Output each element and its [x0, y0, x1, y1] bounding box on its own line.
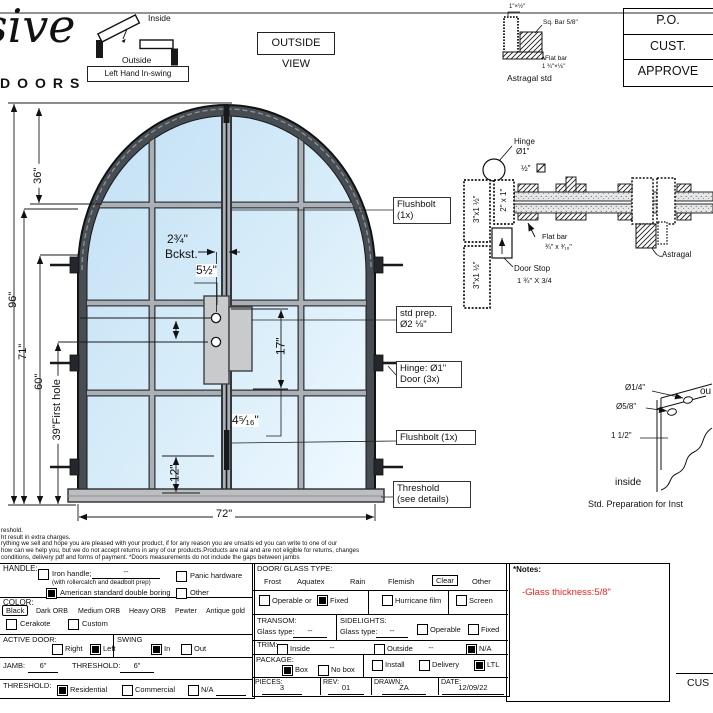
astragal-flatbar-dim: 1 ¾"×⅛"	[542, 64, 565, 70]
view-label: OUTSIDE VIEW	[257, 32, 335, 55]
callout-flushbolt-top-line1: Flushbolt	[397, 199, 447, 210]
callout-threshold-line1: Threshold	[397, 483, 467, 494]
callout-flushbolt-top: Flushbolt (1x)	[393, 197, 451, 224]
color-option-pewter[interactable]: Pewter	[175, 608, 197, 615]
trim-outside-value[interactable]: --	[415, 643, 447, 655]
threshold-commercial-option[interactable]: Commercial	[135, 686, 175, 694]
panic-hardware-checkbox[interactable]	[176, 571, 187, 582]
operable-option[interactable]: Operable or	[272, 597, 312, 605]
glass-option-flemish[interactable]: Flemish	[388, 578, 414, 586]
callout-std-prep-line1: std prep.	[400, 308, 448, 319]
sidelights-fixed-option[interactable]: Fixed	[481, 626, 499, 634]
dim-71: 71"	[18, 340, 30, 364]
handle-other-checkbox[interactable]	[176, 588, 187, 599]
hurricane-option[interactable]: Hurricane film	[395, 597, 441, 605]
handing-label: Left Hand In-swing	[87, 66, 189, 82]
prep-detail-drawing	[640, 384, 712, 492]
threshold-na-option[interactable]: N/A	[201, 686, 214, 694]
swing-out-checkbox[interactable]	[181, 644, 192, 655]
callout-std-prep: std prep. Ø2 ⅛"	[396, 306, 452, 333]
glass-option-aquatex[interactable]: Aquatex	[297, 578, 325, 586]
handle-other-option[interactable]: Other	[190, 589, 209, 597]
date-value[interactable]: 12/09/22	[442, 683, 504, 695]
screen-option[interactable]: Screen	[469, 597, 493, 605]
signature-line	[676, 673, 713, 674]
jamb-threshold-label: THRESHOLD:	[72, 662, 120, 670]
sidelights-glass-value[interactable]: --	[376, 626, 408, 638]
install-checkbox[interactable]	[372, 660, 383, 671]
astragal-top-dim: 1"×½"	[509, 4, 525, 10]
trim-outside-option[interactable]: Outside	[387, 645, 413, 653]
threshold-residential-option[interactable]: Residential	[70, 686, 107, 694]
sidelights-glass-type-label: Glass type:	[340, 628, 378, 636]
section-flatbar-label: Flat bar	[542, 233, 567, 241]
dim-39-first-hole: 39"First hole	[52, 376, 64, 444]
trim-outside-checkbox[interactable]	[374, 644, 385, 655]
package-label: PACKAGE:	[256, 656, 294, 664]
glass-option-other[interactable]: Other	[472, 578, 491, 586]
section-profile-a: 3"x1 ½"	[473, 187, 481, 231]
custom-color-checkbox[interactable]	[68, 619, 79, 630]
notes-label: *Notes:	[513, 566, 541, 574]
callout-threshold-line2: (see details)	[397, 494, 467, 505]
american-boring-checkbox[interactable]	[46, 588, 57, 599]
iron-handle-note: (with rollercatch and deadbolt prep)	[52, 580, 151, 587]
callout-hinge-line1: Hinge: Ø1"	[400, 363, 458, 374]
drawn-value[interactable]: ZA	[382, 683, 426, 695]
swing-inside-label: Inside	[148, 14, 171, 23]
astragal-sqbar-label: Sq. Bar 5/8"	[543, 20, 578, 27]
callout-hinge: Hinge: Ø1" Door (3x)	[396, 361, 462, 388]
section-hinge-label: Hinge	[514, 138, 535, 146]
pieces-value[interactable]: 3	[262, 683, 302, 695]
threshold-residential-checkbox[interactable]	[57, 685, 68, 696]
section-profile-c: 2" x 1"	[500, 178, 508, 222]
sidelights-fixed-checkbox[interactable]	[468, 624, 479, 635]
notes-glass-thickness: -Glass thickness:5/8"	[522, 588, 611, 598]
dim-60: 60"	[34, 370, 46, 394]
callout-hinge-line2: Door (3x)	[400, 374, 458, 385]
prep-caption: Std. Preparation for Inst	[588, 500, 683, 509]
glass-option-frost[interactable]: Frost	[264, 578, 281, 586]
section-astragal-label: Astragal	[662, 251, 691, 259]
fixed-checkbox[interactable]	[317, 595, 328, 606]
transom-glass-value[interactable]: --	[293, 626, 327, 638]
trim-na-checkbox[interactable]	[466, 644, 477, 655]
ltl-option[interactable]: LTL	[487, 661, 499, 669]
glass-type-label: DOOR/ GLASS TYPE:	[257, 565, 332, 573]
astragal-flatbar-label: Flat bar	[545, 56, 567, 63]
threshold-commercial-checkbox[interactable]	[122, 685, 133, 696]
sidelights-operable-checkbox[interactable]	[417, 624, 428, 635]
trim-inside-checkbox[interactable]	[277, 644, 288, 655]
fixed-option[interactable]: Fixed	[330, 597, 348, 605]
jamb-value[interactable]: 6"	[28, 661, 58, 673]
callout-flushbolt-top-line2: (1x)	[397, 210, 447, 221]
iron-handle-checkbox[interactable]	[38, 569, 49, 580]
threshold-na-checkbox[interactable]	[188, 685, 199, 696]
dim-12: 12"	[169, 461, 182, 485]
jamb-label: JAMB:	[3, 662, 25, 670]
trim-na-option[interactable]: N/A	[479, 645, 492, 653]
section-profile-b: 3"x1 ½"	[473, 253, 481, 297]
cerakote-checkbox[interactable]	[6, 619, 17, 630]
logo-script: sive	[0, 2, 76, 50]
swing-in-option[interactable]: In	[164, 645, 170, 653]
astragal-std-detail	[503, 12, 545, 60]
active-door-label: ACTIVE DOOR:	[3, 636, 57, 644]
shop-drawing-sheet: sive DOORS Inside Outside Left Hand In-s…	[0, 0, 713, 713]
rev-value[interactable]: 01	[328, 683, 364, 695]
package-nobox-option[interactable]: No box	[331, 666, 355, 674]
prep-offset: 1 1/2"	[611, 432, 632, 440]
logo-word: DOORS	[0, 76, 86, 91]
approval-row-po: P.O.	[624, 14, 712, 27]
handle-label: HANDLE:	[3, 565, 38, 573]
delivery-option[interactable]: Delivery	[432, 661, 459, 669]
swing-outside-label: Outside	[122, 56, 151, 65]
threshold-label: THRESHOLD:	[3, 682, 51, 690]
dim-backset-value: 2¾"	[167, 233, 188, 246]
dim-5-half: 5½"	[196, 264, 217, 277]
active-left-option[interactable]: Left	[103, 645, 116, 653]
active-left-checkbox[interactable]	[90, 644, 101, 655]
prep-outside: ou	[700, 387, 711, 398]
notes-box	[506, 563, 670, 702]
install-option[interactable]: Install	[385, 661, 405, 669]
color-option-heavy-orb[interactable]: Heavy ORB	[129, 608, 166, 615]
swing-in-checkbox[interactable]	[151, 644, 162, 655]
swing-label: SWING	[117, 636, 142, 644]
flushbolt-top-mark	[224, 106, 230, 123]
package-box-checkbox[interactable]	[282, 665, 293, 676]
transom-glass-type-label: Glass type:	[257, 628, 295, 636]
american-boring-option[interactable]: American standard double boring	[60, 589, 171, 597]
trim-inside-option[interactable]: Inside	[290, 645, 310, 653]
color-option-medium-orb[interactable]: Medium ORB	[78, 608, 120, 615]
color-option-black[interactable]: Black	[2, 605, 28, 616]
jamb-threshold-value[interactable]: 6"	[120, 661, 154, 673]
sidelights-operable-option[interactable]: Operable	[430, 626, 461, 634]
trim-label: TRIM:	[257, 641, 277, 649]
dim-96: 96"	[8, 288, 20, 312]
cerakote-option[interactable]: Cerakote	[20, 620, 50, 628]
fine-print-line: conditions, delivery pdf and forms of pa…	[1, 555, 359, 562]
signature-label: CUS	[687, 678, 709, 689]
fine-print: reshold. ht result in extra charges. ryt…	[1, 528, 359, 562]
iron-handle-option[interactable]: Iron handle;	[52, 570, 92, 578]
prep-hole-big: Ø5/8"	[616, 403, 636, 411]
glass-option-clear[interactable]: Clear	[432, 575, 458, 586]
glass-option-rain[interactable]: Rain	[350, 578, 365, 586]
delivery-checkbox[interactable]	[419, 660, 430, 671]
operable-checkbox[interactable]	[259, 595, 270, 606]
dim-36: 36"	[33, 164, 45, 188]
ltl-checkbox[interactable]	[474, 660, 485, 671]
jamb-section-drawing	[464, 146, 713, 308]
approval-row-cust: CUST.	[624, 40, 712, 53]
prep-inside: inside	[615, 478, 641, 489]
hurricane-checkbox[interactable]	[382, 595, 393, 606]
prep-hole-small: Ø1/4"	[625, 384, 645, 392]
trim-inside-value[interactable]: --	[314, 643, 350, 655]
iron-handle-value[interactable]: --	[92, 567, 160, 579]
dim-4-5-16: 4⁵⁄₁₆"	[232, 414, 259, 427]
dim-backset-word: Bckst.	[165, 248, 198, 261]
section-flatbar-dim: ¾" x ³⁄₁₆"	[545, 244, 572, 251]
section-half-bar: ½"	[521, 165, 531, 173]
section-hinge-dia: Ø1"	[516, 148, 530, 156]
callout-std-prep-line2: Ø2 ⅛"	[400, 319, 448, 330]
dim-17: 17"	[275, 334, 288, 358]
astragal-caption: Astragal std	[507, 74, 552, 83]
package-box-option[interactable]: Box	[295, 666, 308, 674]
section-doorstop-dim: 1 ¾" X 3/4	[517, 277, 552, 285]
color-option-antique-gold[interactable]: Antique gold	[206, 608, 245, 615]
callout-flushbolt-bottom: Flushbolt (1x)	[396, 430, 476, 445]
callout-threshold: Threshold (see details)	[393, 481, 471, 508]
custom-color-option[interactable]: Custom	[82, 620, 108, 628]
active-right-option[interactable]: Right	[65, 645, 83, 653]
flushbolt-bottom-mark	[224, 430, 230, 470]
sidelights-label: SIDELIGHTS:	[340, 617, 387, 625]
dim-72: 72"	[213, 509, 235, 521]
panic-hardware-option[interactable]: Panic hardware	[190, 572, 242, 580]
active-right-checkbox[interactable]	[52, 644, 63, 655]
section-doorstop-label: Door Stop	[514, 265, 550, 273]
threshold-na-value[interactable]	[216, 684, 246, 696]
swing-out-option[interactable]: Out	[194, 645, 206, 653]
package-nobox-checkbox[interactable]	[318, 665, 329, 676]
screen-checkbox[interactable]	[456, 595, 467, 606]
transom-label: TRANSOM:	[257, 617, 297, 625]
color-option-dark-orb[interactable]: Dark ORB	[36, 608, 68, 615]
approval-row-approve: APPROVE	[624, 65, 712, 78]
